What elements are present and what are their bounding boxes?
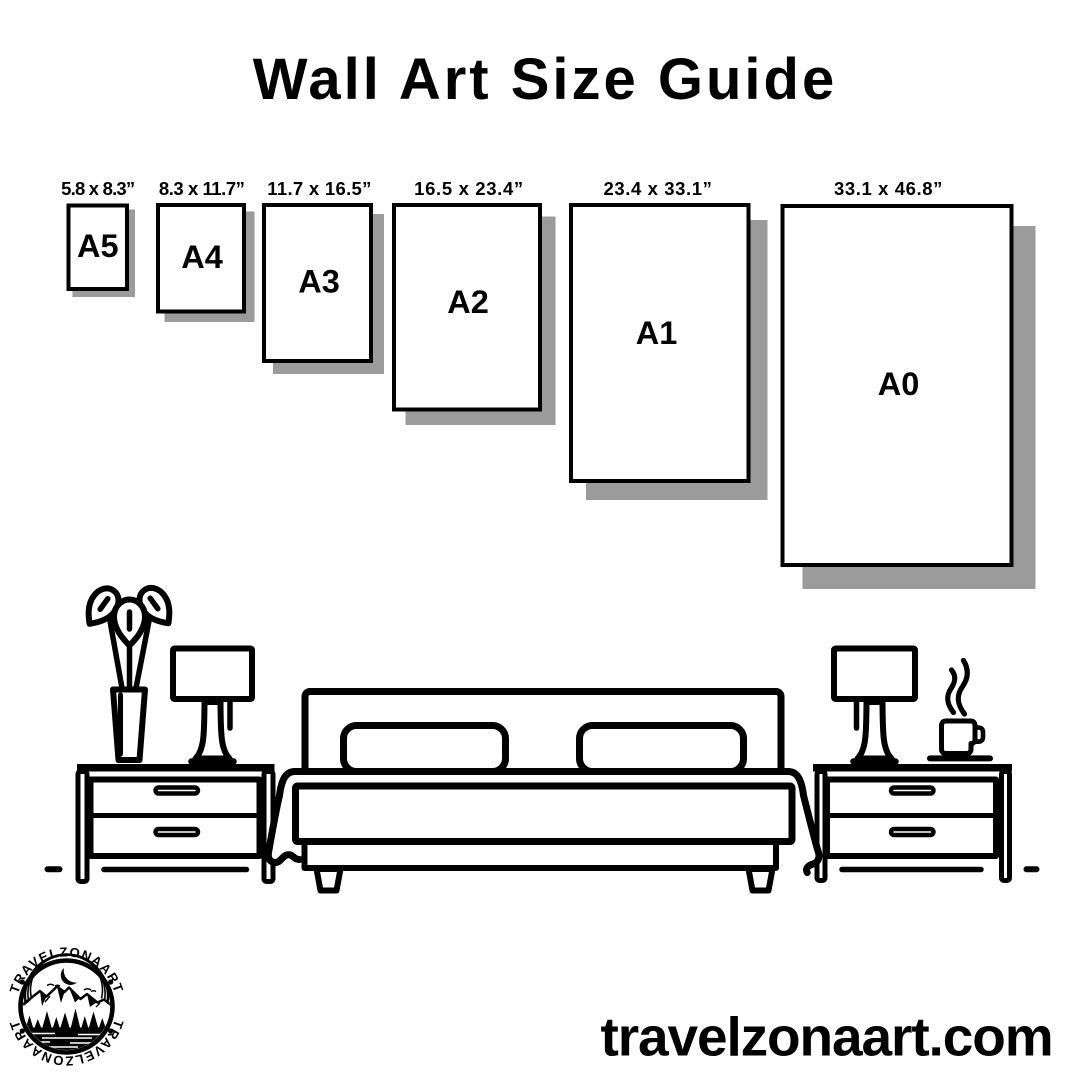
svg-text:5.8 x 8.3”: 5.8 x 8.3” [61, 178, 134, 199]
svg-text:33.1 x 46.8”: 33.1 x 46.8” [834, 178, 943, 199]
svg-text:A0: A0 [878, 366, 920, 402]
svg-text:8.3 x 11.7”: 8.3 x 11.7” [159, 178, 245, 199]
svg-text:16.5 x 23.4”: 16.5 x 23.4” [414, 178, 524, 199]
svg-text:A1: A1 [636, 315, 678, 351]
svg-text:A3: A3 [298, 264, 340, 300]
svg-text:A5: A5 [77, 228, 119, 264]
svg-text:A2: A2 [447, 284, 489, 320]
svg-text:Wall Art Size Guide: Wall Art Size Guide [253, 47, 837, 112]
svg-text:23.4 x 33.1”: 23.4 x 33.1” [603, 178, 712, 199]
svg-text:11.7 x 16.5”: 11.7 x 16.5” [267, 178, 371, 199]
svg-text:A4: A4 [181, 239, 223, 275]
svg-text:travelzonaart.com: travelzonaart.com [600, 1006, 1052, 1068]
